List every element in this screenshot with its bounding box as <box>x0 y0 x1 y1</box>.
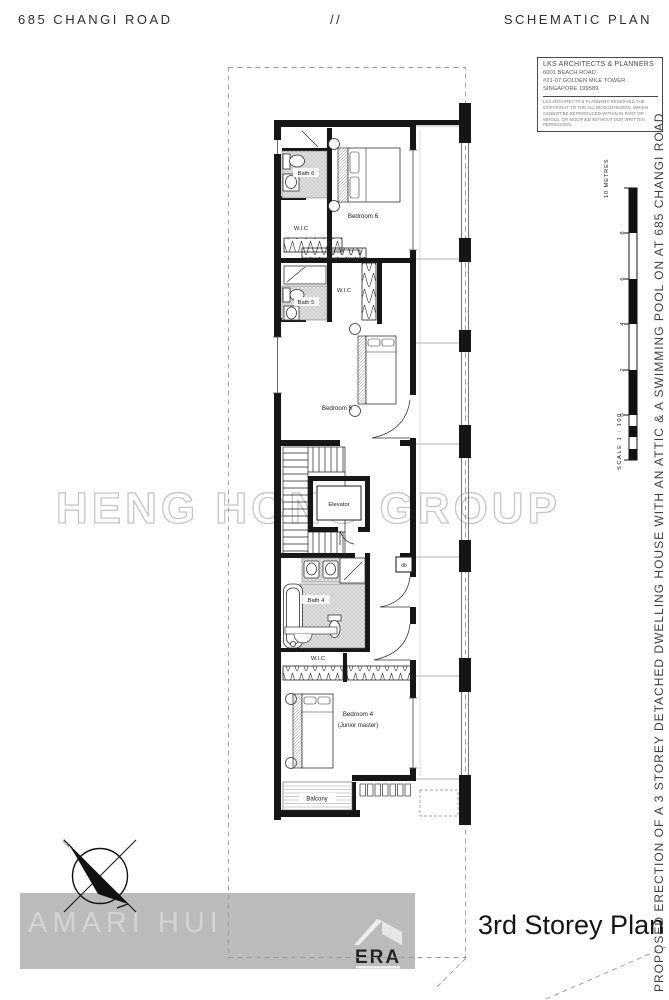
room-label-bedroom5: Bedroom 5 <box>322 405 353 412</box>
scale-tick-4: 4 <box>620 322 626 326</box>
bed-rug <box>358 336 366 404</box>
elevator: Elevator <box>308 476 370 532</box>
bedroom6: Bedroom 6 <box>329 139 401 221</box>
schematic-plan-page: { "header": { "address": "685 CHANGI ROA… <box>0 0 669 1000</box>
header-address: 685 CHANGI ROAD <box>18 12 173 27</box>
room-label-bedroom4: Bedroom 4 <box>343 711 374 718</box>
boundary-wall <box>416 103 471 825</box>
bath6: Bath 6 <box>282 151 327 198</box>
room-label-bedroom4-sub: (Junior master) <box>338 723 378 729</box>
wardrobe <box>330 250 360 259</box>
north-arrow: NORTH <box>61 838 136 912</box>
architect-address-3: SINGAPORE 199589 <box>543 86 658 94</box>
plan-title: 3rd Storey Plan <box>478 910 664 941</box>
wardrobe <box>362 263 376 320</box>
shower <box>340 558 365 583</box>
header-separator: // <box>330 12 342 27</box>
scale-tick-6: 6 <box>620 277 626 280</box>
ledge-below <box>420 790 458 816</box>
room-label-bath5: Bath 5 <box>298 300 315 306</box>
room-label-bath4: Bath 4 <box>308 598 326 604</box>
toilet-tank <box>283 154 290 169</box>
architect-address-2: #21-07 GOLDEN MILE TOWER <box>543 78 658 86</box>
bed <box>348 148 400 202</box>
architect-title-block: LKS ARCHITECTS & PLANNERS 6001 BEACH ROA… <box>537 57 663 132</box>
room-label-balcony: Balcony <box>306 797 327 803</box>
room-label-wic-top: W.I.C <box>294 226 308 232</box>
dashed-border <box>229 68 669 1000</box>
scale-ratio-label: SCALE 1 : 100 <box>617 412 623 470</box>
scale-tick-2: 2 <box>620 368 626 371</box>
bedroom4: Bedroom 4 (Junior master) <box>286 694 379 769</box>
room-label-bedroom6: Bedroom 6 <box>348 213 379 220</box>
copyright-note: LKS ARCHITECTS & PLANNERS RESERVED THE C… <box>543 96 658 128</box>
room-label-wic-mid: W.I.C <box>337 288 351 294</box>
louver-ledge <box>360 784 411 796</box>
bath5: Bath 5 <box>282 266 327 320</box>
wardrobe <box>283 666 343 680</box>
floor-plan-canvas: Bath 6 Bedroom 6 W.I.C Bath 5 <box>0 0 669 1000</box>
side-note-vertical: PROPOSED ERECTION OF A 3 STOREY DETACHED… <box>652 113 666 992</box>
db-box: db <box>396 557 412 572</box>
architect-firm: LKS ARCHITECTS & PLANNERS <box>543 61 658 68</box>
scale-tick-8: 8 <box>620 231 626 234</box>
bed <box>302 694 333 768</box>
bed-rug <box>293 694 302 768</box>
linen-closet <box>284 266 326 284</box>
db-label: db <box>401 563 407 569</box>
room-label-wic-bottom: W.I.C <box>311 656 325 662</box>
vanity-counter <box>285 627 337 634</box>
bedroom5: Bedroom 5 <box>322 324 396 417</box>
toilet-tank <box>283 288 290 302</box>
architect-address-1: 6001 BEACH ROAD <box>543 70 658 78</box>
bed-headboard <box>338 148 348 202</box>
header-doc-type: SCHEMATIC PLAN <box>504 12 652 27</box>
north-label: NORTH <box>61 838 75 852</box>
scale-bar: 10 METRES 8 6 4 2 0 SCALE 1 : 100 <box>604 159 637 470</box>
side-table <box>350 324 361 335</box>
room-label-elevator: Elevator <box>328 502 349 508</box>
scale-top-label: 10 METRES <box>604 159 610 198</box>
wardrobe <box>347 666 412 680</box>
toilet-bowl <box>290 155 305 167</box>
room-label-bath6: Bath 6 <box>298 171 315 177</box>
